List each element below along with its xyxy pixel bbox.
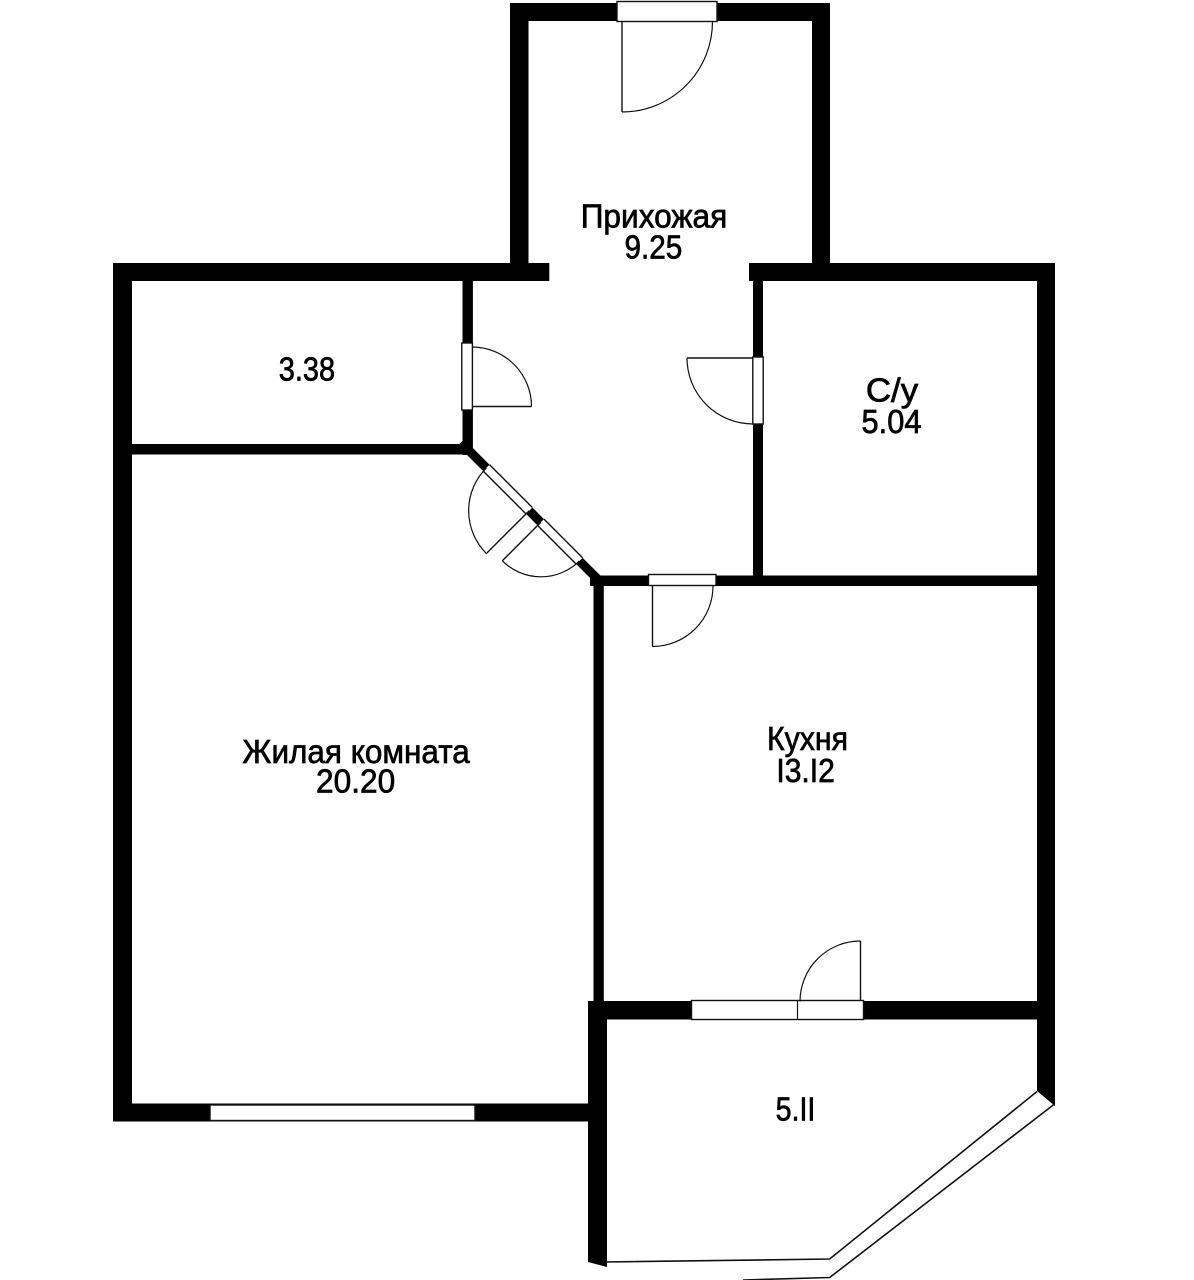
svg-text:I3.I2: I3.I2 (776, 752, 835, 789)
svg-text:5.04: 5.04 (862, 403, 922, 440)
svg-text:3.38: 3.38 (279, 350, 335, 387)
svg-text:5.II: 5.II (776, 1090, 816, 1127)
svg-text:20.20: 20.20 (316, 763, 395, 800)
svg-text:9.25: 9.25 (625, 229, 683, 266)
